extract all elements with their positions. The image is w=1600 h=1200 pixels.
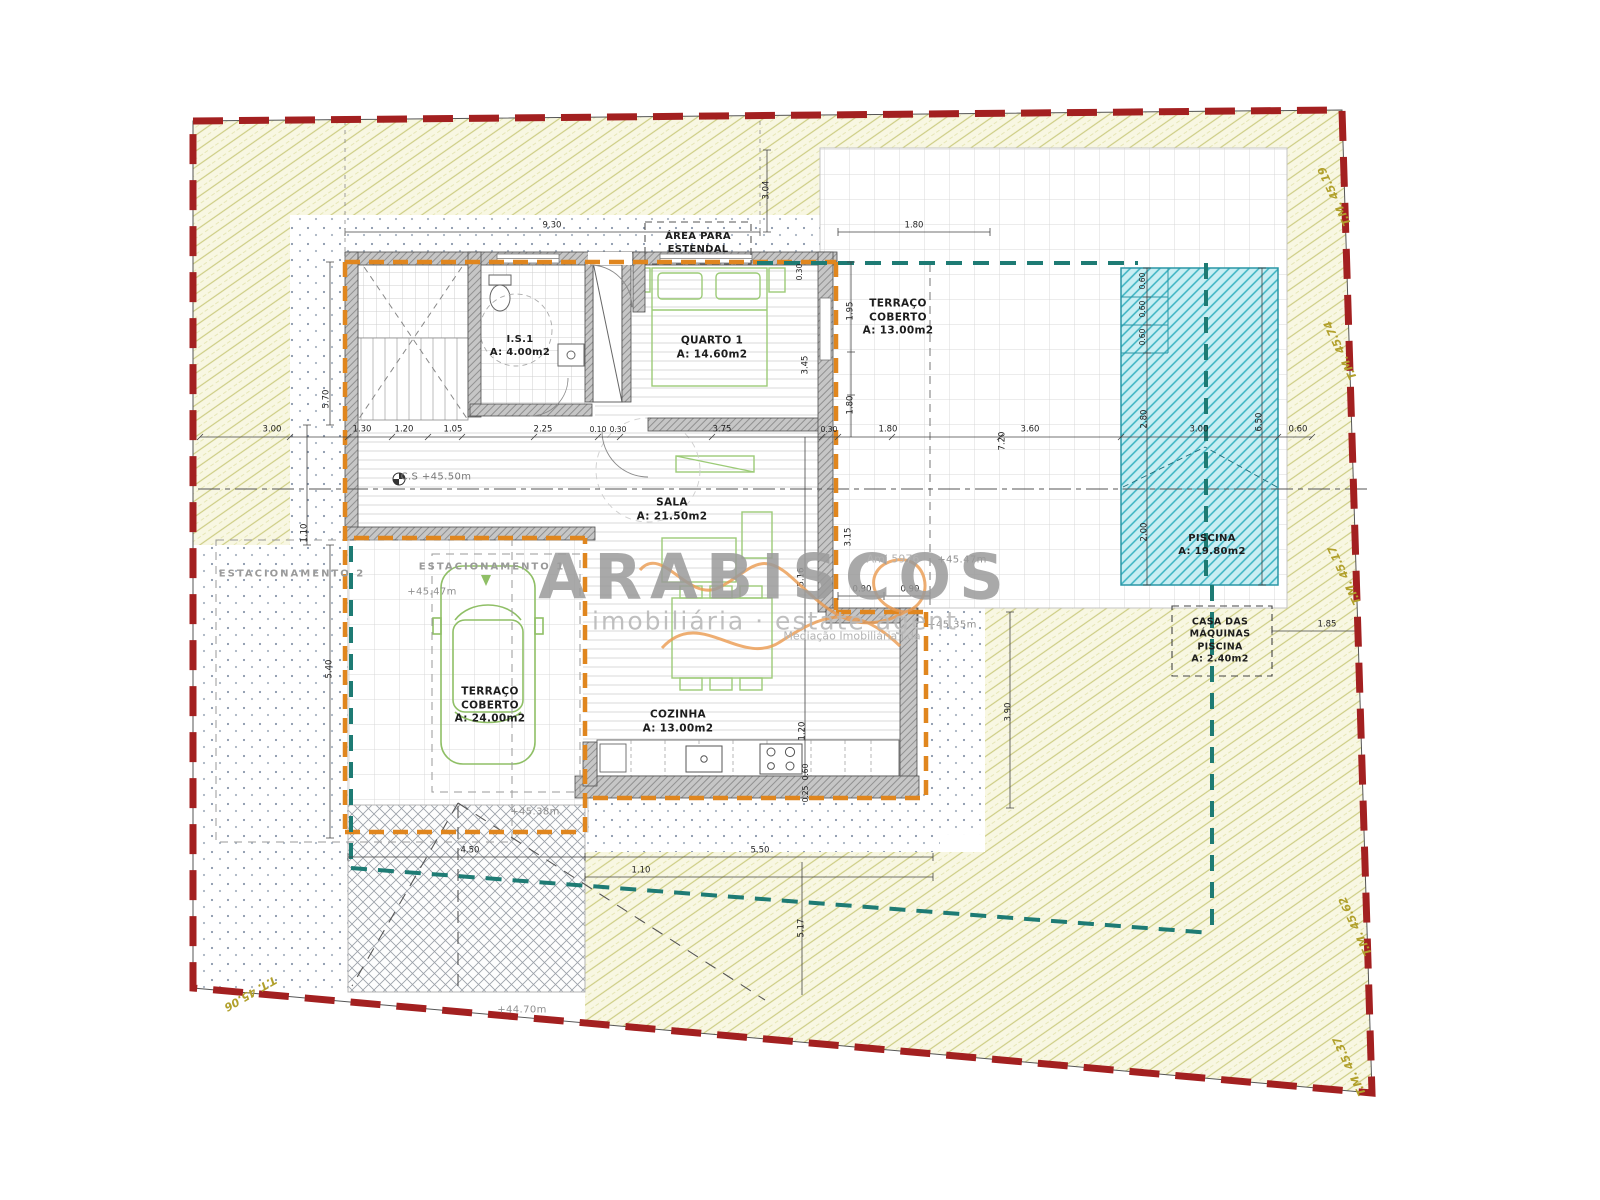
pool <box>1121 268 1278 585</box>
floor-plan-page: ÁREA PARAESTENDALI.S.1A: 4.00m2QUARTO 1A… <box>0 0 1600 1200</box>
stairs-treads <box>358 338 468 420</box>
survey-marker <box>393 473 405 485</box>
kitchen-counter <box>597 740 899 776</box>
stairs-landing <box>358 258 468 338</box>
floor-plan-drawing <box>0 0 1600 1200</box>
